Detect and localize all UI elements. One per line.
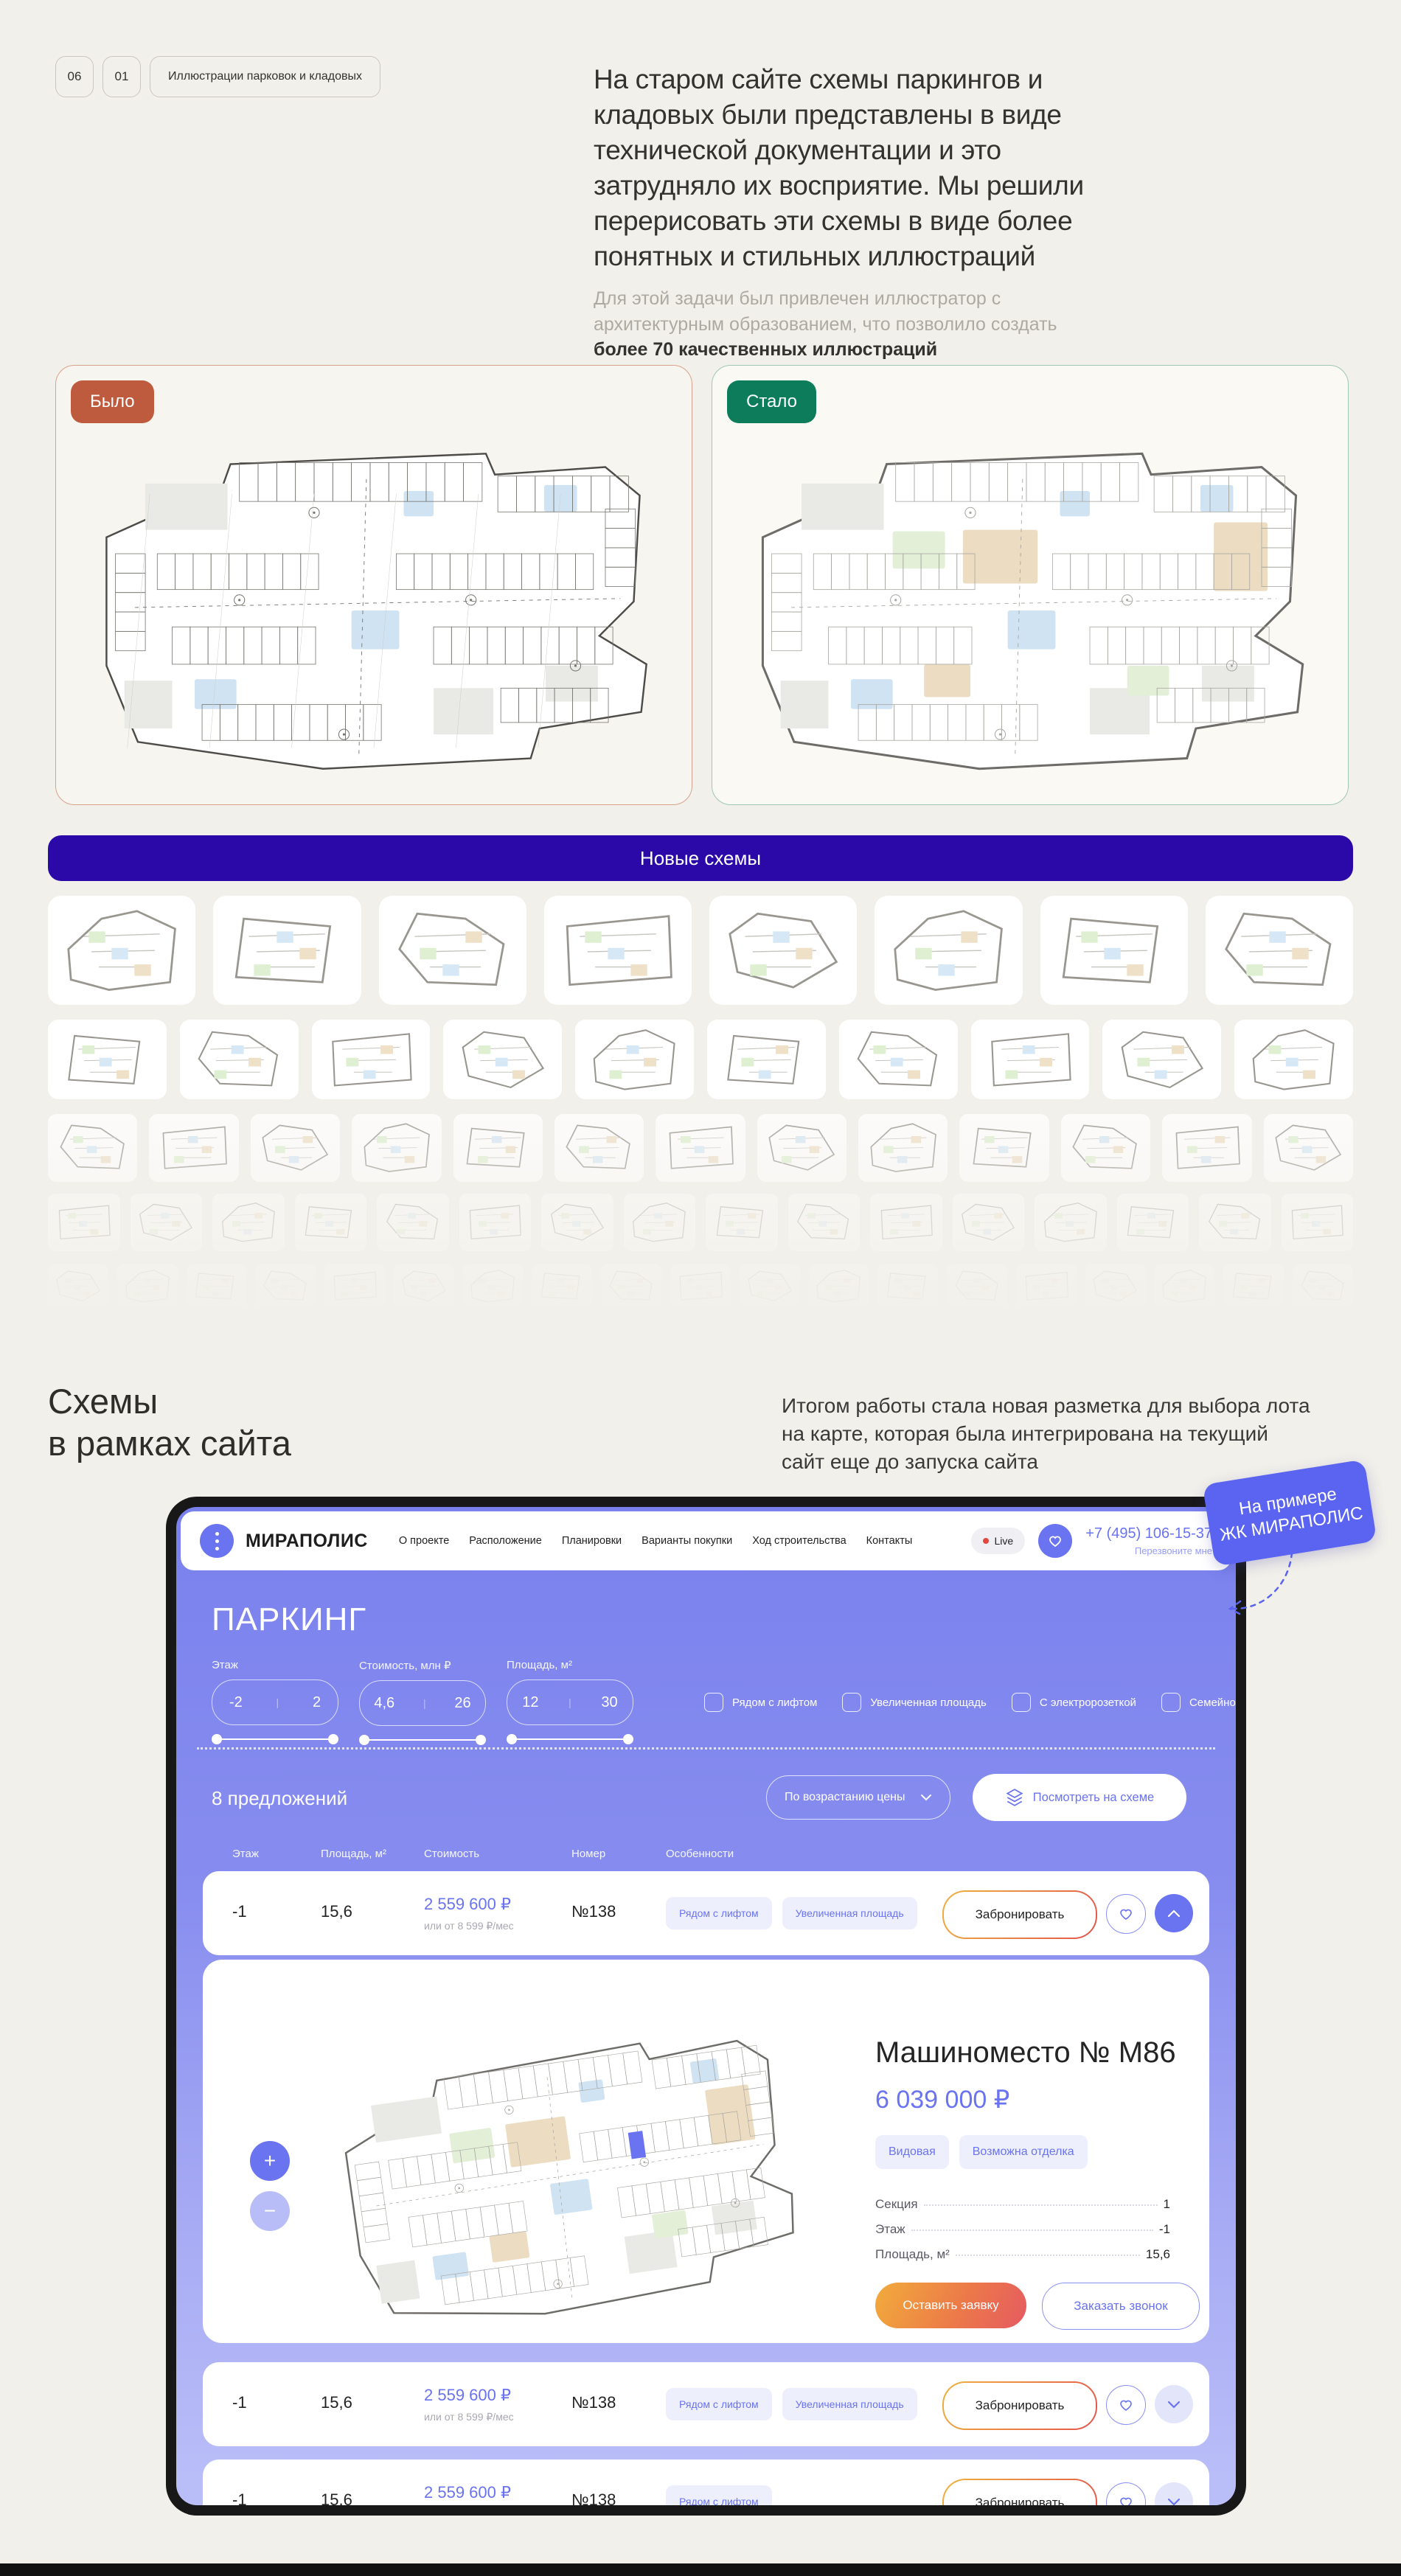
scheme-thumbnail bbox=[255, 1264, 316, 1307]
lot-tag: Видовая bbox=[875, 2135, 949, 2169]
scheme-thumbnail bbox=[463, 1264, 524, 1307]
view-on-scheme-label: Посмотреть на схеме bbox=[1033, 1791, 1154, 1805]
scheme-thumbnail bbox=[706, 1194, 778, 1251]
offer-area: 15,6 bbox=[321, 2490, 352, 2505]
filter-checkbox-3: Семейное bbox=[1161, 1693, 1236, 1712]
scheme-thumbnail bbox=[187, 1264, 247, 1307]
offer-number: №138 bbox=[571, 2490, 616, 2505]
section-number: 06 bbox=[68, 69, 82, 84]
lead-paragraph: На старом сайте схемы паркингов и кладов… bbox=[594, 62, 1110, 275]
offers-count: 8 предложений bbox=[212, 1787, 347, 1810]
scheme-thumbnail bbox=[48, 1114, 137, 1182]
scheme-thumbnail bbox=[839, 1020, 958, 1099]
scheme-thumbnail bbox=[324, 1264, 385, 1307]
scheme-thumbnail bbox=[575, 1020, 694, 1099]
before-badge: Было bbox=[71, 380, 154, 423]
scheme-thumbnail bbox=[959, 1114, 1049, 1182]
scheme-thumbnail bbox=[180, 1020, 299, 1099]
offer-tag: Рядом с лифтом bbox=[666, 2485, 772, 2505]
scheme-thumbnail bbox=[555, 1114, 644, 1182]
after-badge: Стало bbox=[727, 380, 816, 423]
scheme-thumbnail bbox=[971, 1020, 1090, 1099]
favorite-button[interactable] bbox=[1106, 2385, 1146, 2425]
site-header: МИРАПОЛИС О проектеРасположениеПланировк… bbox=[181, 1511, 1231, 1570]
spec-row: Этаж-1 bbox=[875, 2222, 1170, 2237]
scheme-thumbnail bbox=[1117, 1194, 1189, 1251]
offer-tags: Рядом с лифтом bbox=[666, 2485, 772, 2505]
section-number-badge: 06 bbox=[55, 56, 94, 97]
heart-icon bbox=[1046, 1532, 1064, 1550]
scheme-thumbnail bbox=[1085, 1264, 1146, 1307]
offer-row[interactable]: -1 15,6 2 559 600 ₽ или от 8 599 ₽/мес №… bbox=[203, 2362, 1209, 2446]
chevron-down-icon bbox=[920, 1794, 932, 1801]
breadcrumb: 06 01 Иллюстрации парковок и кладовых bbox=[55, 56, 380, 97]
schemes-collage bbox=[48, 896, 1353, 1310]
offer-tags: Рядом с лифтомУвеличенная площадь bbox=[666, 2388, 917, 2420]
before-label: Было bbox=[90, 391, 135, 412]
scheme-thumbnail bbox=[953, 1194, 1025, 1251]
price-min: 4,6 bbox=[374, 1695, 394, 1712]
spec-key: Площадь, м² bbox=[875, 2247, 950, 2262]
note-highlight: более 70 качественных иллюстраций bbox=[594, 339, 937, 360]
site-nav: О проектеРасположениеПланировкиВарианты … bbox=[399, 1535, 912, 1547]
scheme-thumbnail bbox=[312, 1020, 431, 1099]
filter-area: Площадь, м² 12|30 bbox=[507, 1659, 633, 1744]
chevron-icon bbox=[1167, 1910, 1181, 1918]
offer-row[interactable]: -1 15,6 2 559 600 ₽ или от 8 599 ₽/мес №… bbox=[203, 2460, 1209, 2505]
scheme-thumbnail bbox=[48, 1020, 167, 1099]
live-label: Live bbox=[995, 1535, 1014, 1547]
offer-tag: Рядом с лифтом bbox=[666, 1897, 772, 1929]
phone-block: +7 (495) 106-15-37 Перезвоните мне bbox=[1085, 1525, 1212, 1556]
scheme-thumbnail bbox=[117, 1264, 178, 1307]
offer-floor: -1 bbox=[232, 1902, 247, 1921]
after-label: Стало bbox=[746, 391, 797, 412]
collage-row-3 bbox=[48, 1114, 1353, 1182]
spec-value: 15,6 bbox=[1146, 2247, 1170, 2262]
scheme-thumbnail bbox=[1206, 896, 1353, 1005]
offer-number: №138 bbox=[571, 2393, 616, 2412]
brand-name: МИРАПОЛИС bbox=[246, 1531, 368, 1552]
floor-min: -2 bbox=[229, 1694, 243, 1711]
offer-monthly: или от 8 599 ₽/мес bbox=[424, 1920, 514, 1932]
filter-floor: Этаж -2|2 bbox=[212, 1659, 338, 1744]
book-button[interactable]: Забронировать bbox=[942, 2479, 1097, 2505]
banner-label: Новые схемы bbox=[640, 847, 761, 870]
area-min: 12 bbox=[522, 1694, 538, 1711]
offer-tag: Увеличенная площадь bbox=[782, 2388, 917, 2420]
scheme-thumbnail bbox=[131, 1194, 203, 1251]
offer-area: 15,6 bbox=[321, 1902, 352, 1921]
scheme-thumbnail bbox=[1223, 1264, 1284, 1307]
offer-tags: Рядом с лифтомУвеличенная площадь bbox=[666, 1897, 917, 1929]
offer-price: 2 559 600 ₽ bbox=[424, 2386, 511, 2405]
collage-row-2 bbox=[48, 1020, 1353, 1099]
zoom-in-button[interactable]: + bbox=[250, 2141, 290, 2181]
collage-row-5 bbox=[48, 1264, 1353, 1307]
scheme-thumbnail bbox=[544, 896, 692, 1005]
scheme-thumbnail bbox=[212, 1194, 285, 1251]
lot-specs: Секция1Этаж-1Площадь, м²15,6 bbox=[875, 2197, 1170, 2272]
checkbox-label: Семейное bbox=[1189, 1696, 1236, 1709]
offer-price: 2 559 600 ₽ bbox=[424, 1895, 511, 1914]
sort-dropdown[interactable]: По возрастанию цены bbox=[766, 1775, 950, 1820]
scheme-thumbnail bbox=[453, 1114, 543, 1182]
collage-row-4 bbox=[48, 1194, 1353, 1251]
scheme-thumbnail bbox=[788, 1194, 861, 1251]
checkbox-icon[interactable] bbox=[704, 1693, 723, 1712]
scheme-thumbnail bbox=[809, 1264, 869, 1307]
filter-floor-slider bbox=[212, 1734, 338, 1744]
offer-number: №138 bbox=[571, 1902, 616, 1921]
website-mockup: МИРАПОЛИС О проектеРасположениеПланировк… bbox=[176, 1507, 1236, 2505]
nav-item-4[interactable]: Ход строительства bbox=[752, 1535, 846, 1547]
filter-price-range[interactable]: 4,6|26 bbox=[359, 1680, 486, 1726]
offer-row[interactable]: -1 15,6 2 559 600 ₽ или от 8 599 ₽/мес №… bbox=[203, 1871, 1209, 1955]
column-header-4: Особенности bbox=[666, 1848, 734, 1860]
before-card: Было bbox=[55, 365, 692, 805]
section-heading-line2: в рамках сайта bbox=[48, 1422, 291, 1464]
scheme-thumbnail bbox=[251, 1114, 340, 1182]
filter-price-slider bbox=[359, 1735, 486, 1745]
spec-key: Секция bbox=[875, 2197, 918, 2212]
phone-number[interactable]: +7 (495) 106-15-37 bbox=[1085, 1525, 1212, 1542]
dotted-divider bbox=[197, 1747, 1215, 1750]
website-mockup-frame: МИРАПОЛИС О проектеРасположениеПланировк… bbox=[166, 1497, 1246, 2516]
filter-checkbox-2: С электророзеткой bbox=[1012, 1693, 1136, 1712]
filter-area-slider bbox=[507, 1734, 633, 1744]
scheme-thumbnail bbox=[48, 896, 195, 1005]
checkbox-icon[interactable] bbox=[1161, 1693, 1181, 1712]
nav-item-2[interactable]: Планировки bbox=[562, 1535, 622, 1547]
scheme-thumbnail bbox=[541, 1194, 613, 1251]
favorites-button[interactable] bbox=[1038, 1524, 1072, 1558]
scheme-thumbnail bbox=[875, 896, 1022, 1005]
zoom-out-button[interactable]: − bbox=[250, 2191, 290, 2231]
leave-request-button[interactable]: Оставить заявку bbox=[875, 2283, 1026, 2328]
note-paragraph: Для этой задачи был привлечен иллюстрато… bbox=[594, 286, 1080, 363]
scheme-thumbnail bbox=[1282, 1194, 1354, 1251]
section-heading-line1: Схемы bbox=[48, 1380, 291, 1422]
scheme-thumbnail bbox=[352, 1114, 441, 1182]
checkbox-label: Увеличенная площадь bbox=[870, 1696, 986, 1709]
page: 06 01 Иллюстрации парковок и кладовых На… bbox=[0, 0, 1401, 2576]
offer-area: 15,6 bbox=[321, 2393, 352, 2412]
section-title: Иллюстрации парковок и кладовых bbox=[168, 70, 362, 83]
checkbox-icon[interactable] bbox=[842, 1693, 861, 1712]
offer-floor: -1 bbox=[232, 2393, 247, 2412]
book-button[interactable]: Забронировать bbox=[942, 1890, 1097, 1939]
scheme-thumbnail bbox=[1061, 1114, 1150, 1182]
favorite-button[interactable] bbox=[1106, 2482, 1146, 2505]
expand-button[interactable] bbox=[1155, 2482, 1193, 2505]
filter-price: Стоимость, млн ₽ 4,6|26 bbox=[359, 1659, 486, 1745]
area-max: 30 bbox=[601, 1694, 617, 1711]
column-header-3: Номер bbox=[571, 1848, 605, 1860]
filter-price-label: Стоимость, млн ₽ bbox=[359, 1659, 486, 1672]
live-badge: Live bbox=[971, 1528, 1026, 1554]
layers-icon bbox=[1005, 1788, 1024, 1807]
checkbox-label: С электророзеткой bbox=[1040, 1696, 1136, 1709]
scheme-thumbnail bbox=[858, 1114, 948, 1182]
section-paragraph: Итогом работы стала новая разметка для в… bbox=[782, 1392, 1313, 1476]
order-call-button[interactable]: Заказать звонок bbox=[1042, 2283, 1200, 2330]
favorite-button[interactable] bbox=[1106, 1894, 1146, 1934]
scheme-thumbnail bbox=[1035, 1194, 1107, 1251]
scheme-thumbnail bbox=[877, 1264, 938, 1307]
spec-value: -1 bbox=[1159, 2222, 1170, 2237]
note-gray: Для этой задачи был привлечен иллюстрато… bbox=[594, 288, 1057, 335]
spec-key: Этаж bbox=[875, 2222, 905, 2237]
checkbox-icon[interactable] bbox=[1012, 1693, 1031, 1712]
scheme-thumbnail bbox=[379, 896, 526, 1005]
scheme-thumbnail bbox=[1264, 1114, 1353, 1182]
scheme-thumbnail bbox=[656, 1114, 745, 1182]
filter-checkboxes: Рядом с лифтомУвеличенная площадьС элект… bbox=[704, 1693, 1236, 1712]
scheme-thumbnail bbox=[624, 1194, 696, 1251]
column-header-0: Этаж bbox=[232, 1848, 259, 1860]
section-title-badge: Иллюстрации парковок и кладовых bbox=[150, 56, 380, 97]
column-header-1: Площадь, м² bbox=[321, 1848, 386, 1860]
scheme-thumbnail bbox=[601, 1264, 661, 1307]
sort-label: По возрастанию цены bbox=[785, 1791, 905, 1804]
scheme-thumbnail bbox=[740, 1264, 800, 1307]
scheme-thumbnail bbox=[1155, 1264, 1215, 1307]
expand-button[interactable] bbox=[1155, 2385, 1193, 2423]
scheme-thumbnail bbox=[443, 1020, 562, 1099]
offer-tag: Рядом с лифтом bbox=[666, 2388, 772, 2420]
scheme-thumbnail bbox=[1199, 1194, 1271, 1251]
slider-knob[interactable] bbox=[212, 1734, 222, 1744]
scheme-thumbnail bbox=[377, 1194, 449, 1251]
filter-checkbox-1: Увеличенная площадь bbox=[842, 1693, 986, 1712]
before-floorplan-image bbox=[83, 434, 665, 786]
scheme-thumbnail bbox=[295, 1194, 367, 1251]
offer-tag: Увеличенная площадь bbox=[782, 1897, 917, 1929]
subsection-number: 01 bbox=[115, 69, 129, 84]
slider-knob[interactable] bbox=[476, 1735, 486, 1745]
lot-price: 6 039 000 ₽ bbox=[875, 2085, 1009, 2114]
scheme-thumbnail bbox=[1016, 1264, 1077, 1307]
nav-item-0[interactable]: О проекте bbox=[399, 1535, 449, 1547]
parking-page-title: ПАРКИНГ bbox=[212, 1601, 366, 1638]
parking-floorplan-map[interactable] bbox=[297, 2011, 839, 2350]
scheme-thumbnail bbox=[709, 896, 857, 1005]
slider-knob[interactable] bbox=[328, 1734, 338, 1744]
scheme-thumbnail bbox=[459, 1194, 532, 1251]
chevron-icon bbox=[1167, 2401, 1181, 2409]
scheme-thumbnail bbox=[532, 1264, 592, 1307]
scheme-thumbnail bbox=[213, 896, 361, 1005]
scheme-thumbnail bbox=[870, 1194, 942, 1251]
spec-row: Площадь, м²15,6 bbox=[875, 2247, 1170, 2262]
nav-item-5[interactable]: Контакты bbox=[866, 1535, 913, 1547]
callback-link[interactable]: Перезвоните мне bbox=[1085, 1545, 1212, 1556]
scheme-thumbnail bbox=[1102, 1020, 1221, 1099]
slider-knob[interactable] bbox=[359, 1735, 369, 1745]
nav-item-1[interactable]: Расположение bbox=[469, 1535, 542, 1547]
section-heading: Схемы в рамках сайта bbox=[48, 1380, 291, 1465]
slider-knob[interactable] bbox=[623, 1734, 633, 1744]
subsection-number-badge: 01 bbox=[102, 56, 141, 97]
scheme-thumbnail bbox=[48, 1264, 108, 1307]
slider-knob[interactable] bbox=[507, 1734, 517, 1744]
offer-price: 2 559 600 ₽ bbox=[424, 2483, 511, 2502]
spec-row: Секция1 bbox=[875, 2197, 1170, 2212]
scheme-thumbnail bbox=[707, 1020, 826, 1099]
scheme-thumbnail bbox=[149, 1114, 238, 1182]
lot-tag: Возможна отделка bbox=[959, 2135, 1088, 2169]
logo-icon[interactable] bbox=[200, 1524, 234, 1558]
scheme-thumbnail bbox=[757, 1114, 846, 1182]
chevron-icon bbox=[1167, 2498, 1181, 2506]
price-max: 26 bbox=[454, 1695, 470, 1712]
live-dot-icon bbox=[983, 1538, 989, 1544]
offer-detail-card: + − Машиноместо № М86 6 039 000 ₽ Видова… bbox=[203, 1960, 1209, 2343]
scheme-thumbnail bbox=[1162, 1114, 1251, 1182]
after-floorplan-image bbox=[739, 434, 1321, 786]
scheme-thumbnail bbox=[1040, 896, 1188, 1005]
scheme-thumbnail bbox=[48, 1194, 120, 1251]
scheme-thumbnail bbox=[670, 1264, 731, 1307]
heart-icon bbox=[1117, 2396, 1135, 2414]
filter-floor-label: Этаж bbox=[212, 1659, 338, 1671]
view-on-scheme-button[interactable]: Посмотреть на схеме bbox=[973, 1774, 1186, 1821]
spec-value: 1 bbox=[1164, 2197, 1170, 2212]
header-right: Live +7 (495) 106-15-37 Перезвоните мне bbox=[971, 1524, 1212, 1558]
floor-max: 2 bbox=[313, 1694, 321, 1711]
filter-floor-range[interactable]: -2|2 bbox=[212, 1679, 338, 1725]
filter-area-range[interactable]: 12|30 bbox=[507, 1679, 633, 1725]
next-section-edge bbox=[0, 2563, 1401, 2576]
checkbox-label: Рядом с лифтом bbox=[732, 1696, 817, 1709]
scheme-thumbnail bbox=[394, 1264, 454, 1307]
nav-item-3[interactable]: Варианты покупки bbox=[642, 1535, 732, 1547]
collage-row-1 bbox=[48, 896, 1353, 1005]
filter-area-label: Площадь, м² bbox=[507, 1659, 633, 1671]
new-schemes-banner: Новые схемы bbox=[48, 835, 1353, 881]
expand-button[interactable] bbox=[1155, 1894, 1193, 1932]
lot-title: Машиноместо № М86 bbox=[875, 2036, 1176, 2069]
filter-checkbox-0: Рядом с лифтом bbox=[704, 1693, 817, 1712]
scheme-thumbnail bbox=[947, 1264, 1007, 1307]
offer-monthly: или от 8 599 ₽/мес bbox=[424, 2411, 514, 2423]
scheme-thumbnail bbox=[1293, 1264, 1353, 1307]
lot-tags: ВидоваяВозможна отделка bbox=[875, 2135, 1088, 2169]
heart-icon bbox=[1117, 2493, 1135, 2505]
after-card: Стало bbox=[712, 365, 1349, 805]
scheme-thumbnail bbox=[1234, 1020, 1353, 1099]
offer-floor: -1 bbox=[232, 2490, 247, 2505]
book-button[interactable]: Забронировать bbox=[942, 2381, 1097, 2430]
heart-icon bbox=[1117, 1905, 1135, 1923]
column-header-2: Стоимость bbox=[424, 1848, 479, 1860]
